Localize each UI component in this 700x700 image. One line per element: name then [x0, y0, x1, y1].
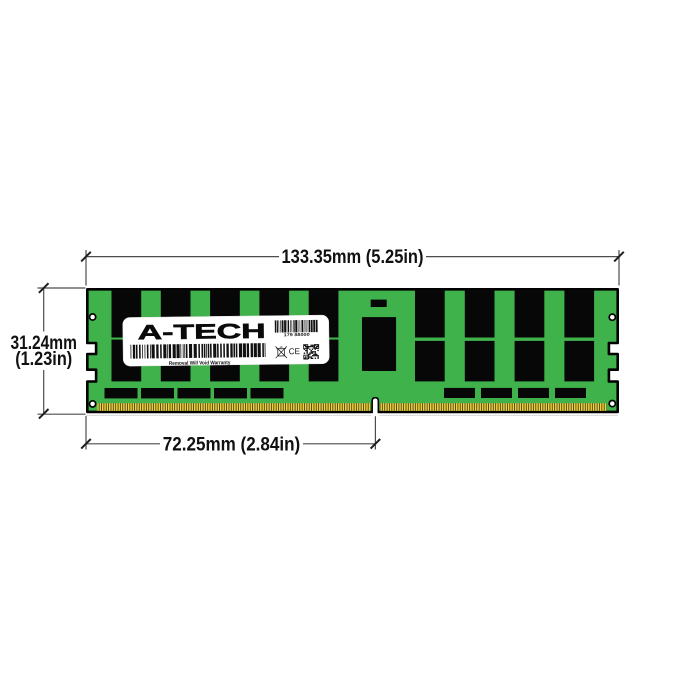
svg-text:A-TECH: A-TECH: [138, 320, 266, 345]
svg-text:179 88000: 179 88000: [284, 332, 311, 337]
svg-text:72.25mm (2.84in): 72.25mm (2.84in): [163, 434, 301, 456]
svg-text:CE: CE: [289, 346, 301, 356]
svg-text:(1.23in): (1.23in): [15, 348, 72, 370]
svg-text:Removal Will Void Warranty: Removal Will Void Warranty: [169, 360, 231, 367]
svg-text:133.35mm (5.25in): 133.35mm (5.25in): [282, 246, 424, 268]
